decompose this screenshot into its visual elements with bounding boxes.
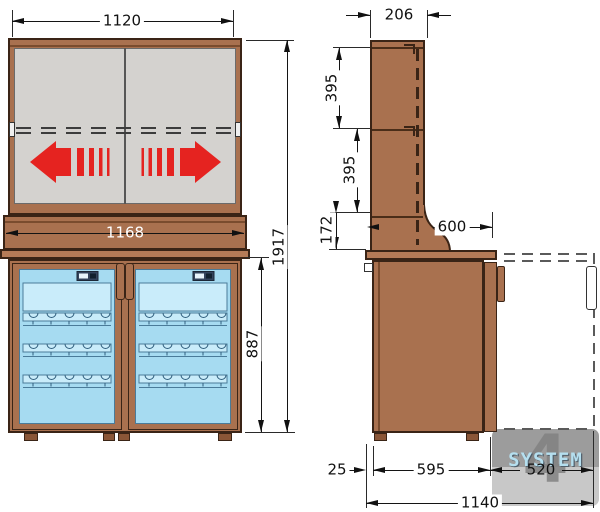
foot: [374, 433, 387, 441]
dim-arrow-icon: [366, 500, 378, 506]
dim-arrow-icon: [6, 230, 18, 236]
dim-side-upper-section-a: 395: [324, 71, 341, 106]
dim-arrow-icon: [373, 467, 385, 473]
dim-side-rear-overhang: 25: [324, 462, 349, 479]
foot: [118, 433, 130, 441]
right-edge-handle: [235, 122, 241, 137]
fridge-handle-right: [125, 263, 134, 300]
dim-arrow-icon: [258, 420, 264, 432]
side-body-line: [378, 262, 380, 431]
door-track-line: [16, 127, 234, 129]
side-door-slab: [484, 262, 497, 432]
dim-arrow-icon: [354, 200, 360, 212]
dim-side-top-depth: 206: [382, 7, 417, 24]
side-door-handle: [497, 266, 505, 302]
dim-arrow-icon: [490, 467, 502, 473]
door-swing-handle-outline: [586, 266, 597, 310]
dim-arrow-icon: [581, 500, 593, 506]
door-swing-dashed-top2: [504, 260, 594, 262]
sliding-door-edge-dashed: [416, 49, 419, 245]
dim-side-upper-section-c: 172: [319, 213, 336, 248]
dim-side-upper-section-b: 395: [342, 153, 359, 188]
side-lower-body: [372, 260, 484, 433]
dim-arrow-icon: [333, 201, 339, 213]
dim-side-counter-depth: 600: [435, 219, 470, 236]
dim-extension-line: [370, 10, 371, 38]
rear-spacer: [364, 263, 373, 272]
dim-extension-line: [593, 431, 594, 508]
upper-cabinet-top-rail-line: [10, 45, 240, 47]
dim-extension-line: [233, 10, 234, 37]
dim-arrow-icon: [358, 12, 370, 18]
dim-arrow-icon: [221, 18, 233, 24]
door-swing-dashed-top: [504, 253, 594, 255]
dim-arrow-icon: [284, 420, 290, 432]
door-track-line: [16, 132, 234, 134]
dim-side-total-depth: 1140: [458, 495, 502, 512]
left-edge-handle: [9, 122, 15, 137]
dim-arrow-icon: [427, 12, 439, 18]
dim-extension-line: [366, 444, 367, 508]
side-counter: [365, 250, 497, 260]
dim-extension-line: [492, 212, 493, 238]
slide-direction-left-arrow-icon: [30, 139, 115, 185]
dim-arrow-icon: [258, 258, 264, 270]
dim-front-total-height: 1917: [271, 225, 288, 269]
dim-side-body-depth: 595: [414, 462, 449, 479]
wine-shelves-glass-right: [135, 269, 231, 424]
hinge-icon: [404, 44, 415, 54]
dim-arrow-icon: [581, 467, 593, 473]
dim-side-door-swing: 520: [524, 462, 559, 479]
dim-arrow-icon: [354, 467, 366, 473]
door-swing-dashed-bottom: [504, 428, 594, 430]
foot: [103, 433, 115, 441]
dim-extension-line: [329, 249, 366, 250]
dim-arrow-icon: [354, 129, 360, 141]
fridge-handle-left: [116, 263, 125, 300]
slide-direction-right-arrow-icon: [136, 139, 221, 185]
counter-lip: [0, 249, 250, 259]
dim-extension-line: [12, 10, 13, 37]
dim-front-top-width: 1120: [100, 13, 144, 30]
dim-arrow-icon: [336, 48, 342, 60]
dim-arrow-icon: [336, 116, 342, 128]
foot: [218, 433, 232, 441]
dim-arrow-icon: [284, 40, 290, 52]
dim-arrow-icon: [12, 18, 24, 24]
dim-arrow-icon: [367, 224, 379, 230]
counter-band-line: [5, 221, 245, 223]
front-elevation-view: 1120: [0, 0, 300, 512]
dim-arrow-icon: [478, 467, 490, 473]
wine-shelves-glass-left: [19, 269, 115, 424]
technical-drawing-canvas: 1120: [0, 0, 600, 512]
foot: [24, 433, 38, 441]
dim-extension-line: [333, 128, 370, 129]
sliding-door-divider: [124, 48, 126, 204]
dim-arrow-icon: [232, 230, 244, 236]
dim-extension-line: [245, 432, 295, 433]
foot: [466, 433, 479, 441]
dim-front-counter-width: 1168: [103, 225, 147, 242]
dim-front-lower-height: 887: [245, 327, 262, 362]
hinge-icon: [404, 126, 415, 136]
dim-arrow-icon: [480, 224, 492, 230]
